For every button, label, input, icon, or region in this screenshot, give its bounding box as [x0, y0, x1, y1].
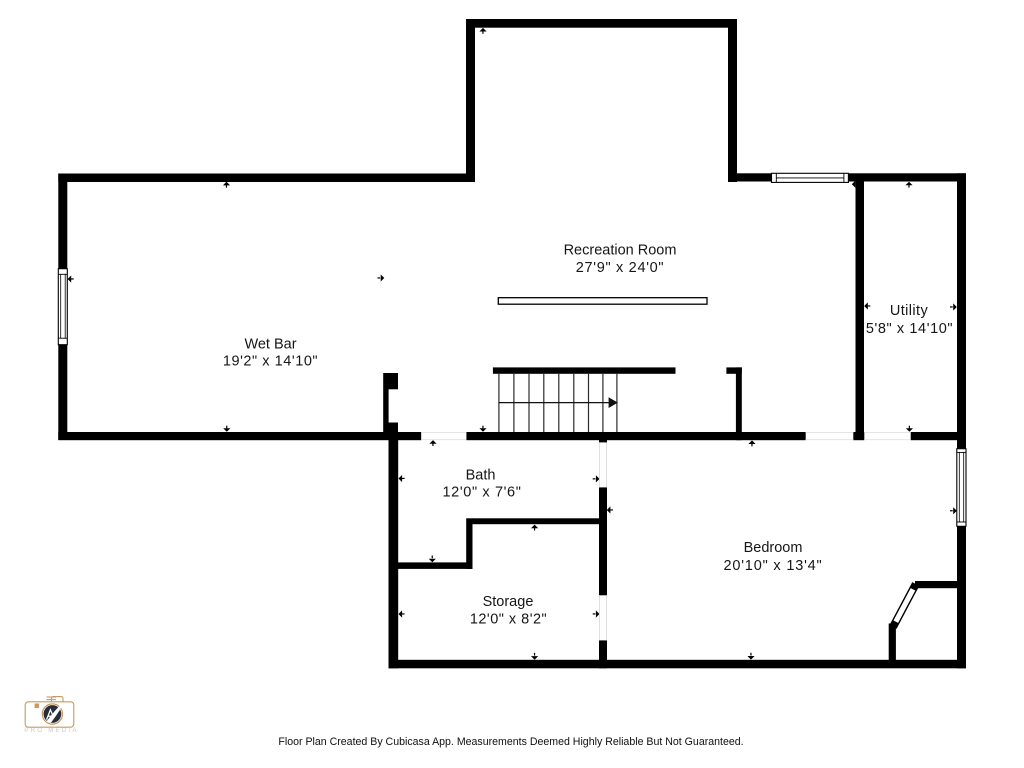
svg-text:Storage: Storage: [483, 594, 534, 610]
svg-text:PRO MEDIA: PRO MEDIA: [24, 728, 78, 734]
svg-text:Bedroom: Bedroom: [744, 540, 803, 556]
svg-text:Floor Plan Created By Cubicasa: Floor Plan Created By Cubicasa App. Meas…: [278, 736, 743, 748]
svg-text:Bath: Bath: [466, 467, 496, 483]
svg-text:27'9" x 24'0": 27'9" x 24'0": [576, 260, 665, 276]
svg-text:5'8" x 14'10": 5'8" x 14'10": [866, 321, 953, 337]
svg-text:Wet Bar: Wet Bar: [244, 337, 296, 353]
svg-text:19'2" x 14'10": 19'2" x 14'10": [223, 353, 318, 369]
svg-text:12'0" x 8'2": 12'0" x 8'2": [470, 611, 547, 627]
svg-text:20'10" x 13'4": 20'10" x 13'4": [723, 558, 822, 574]
svg-text:Recreation Room: Recreation Room: [564, 243, 677, 259]
svg-text:Utility: Utility: [890, 303, 929, 319]
svg-text:12'0" x 7'6": 12'0" x 7'6": [442, 485, 521, 501]
